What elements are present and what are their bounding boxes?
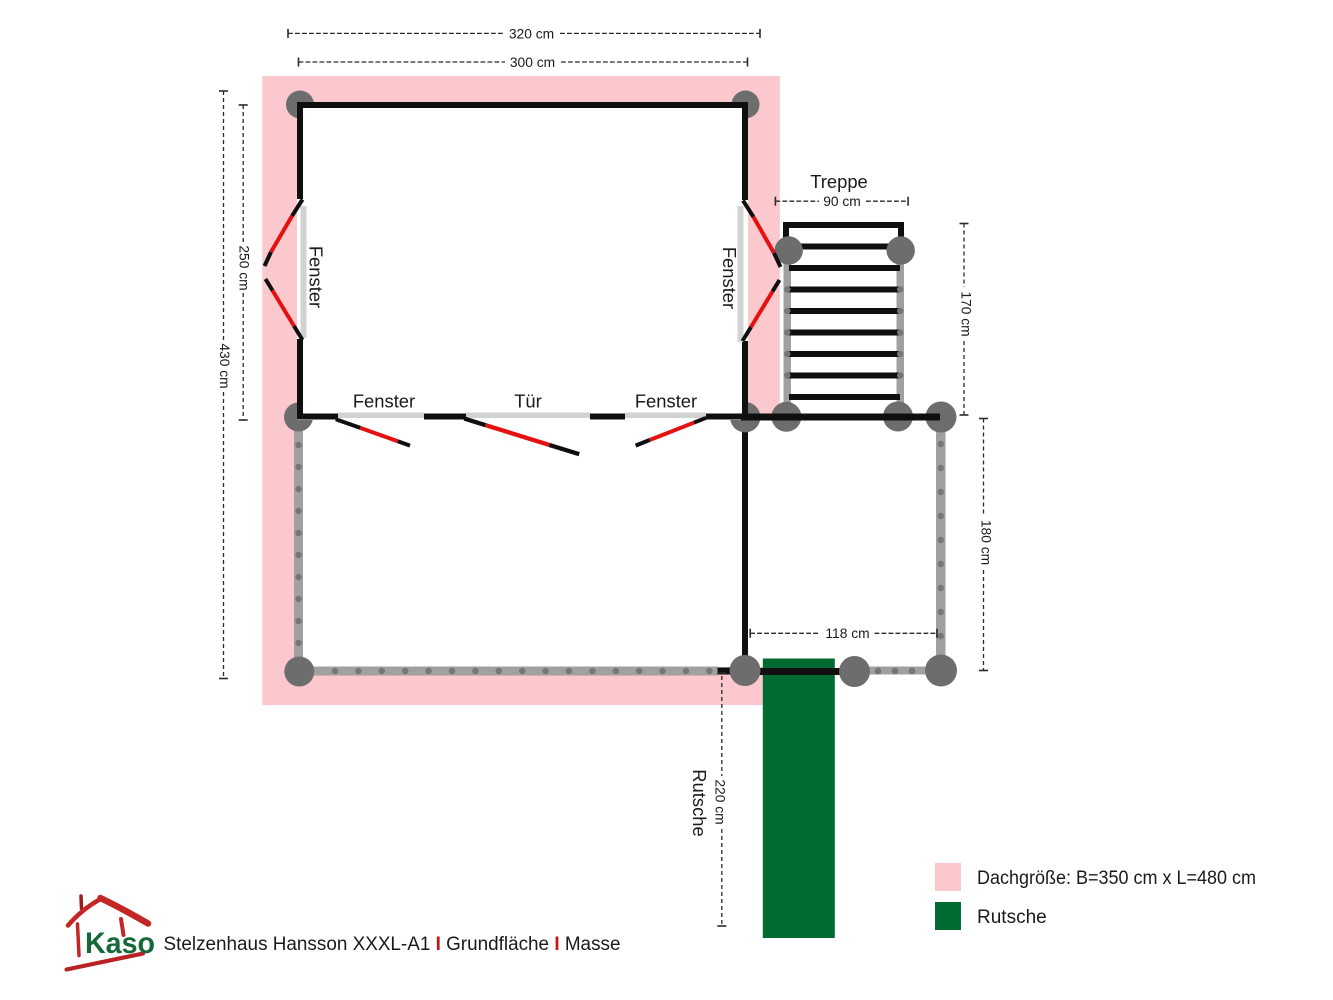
svg-text:Fenster: Fenster — [719, 247, 740, 309]
svg-text:220 cm: 220 cm — [713, 779, 728, 824]
svg-text:170 cm: 170 cm — [958, 291, 973, 336]
svg-text:Fenster: Fenster — [305, 246, 326, 308]
svg-text:Dachgröße: B=350 cm x L=480 cm: Dachgröße: B=350 cm x L=480 cm — [977, 868, 1256, 889]
svg-text:180 cm: 180 cm — [979, 520, 994, 565]
svg-text:250 cm: 250 cm — [237, 245, 252, 290]
svg-text:Treppe: Treppe — [810, 171, 868, 192]
svg-text:Stelzenhaus Hansson XXXL-A1 I: Stelzenhaus Hansson XXXL-A1 I Grundfläch… — [164, 934, 621, 955]
svg-text:118 cm: 118 cm — [825, 626, 869, 641]
svg-text:320 cm: 320 cm — [509, 27, 554, 42]
svg-text:300 cm: 300 cm — [510, 55, 555, 70]
svg-text:Tür: Tür — [514, 390, 542, 411]
svg-text:Fenster: Fenster — [353, 390, 415, 411]
svg-text:90 cm: 90 cm — [823, 194, 861, 209]
svg-text:Rutsche: Rutsche — [689, 769, 710, 836]
svg-text:Kaso: Kaso — [85, 927, 155, 960]
svg-text:Fenster: Fenster — [635, 390, 697, 411]
svg-text:Rutsche: Rutsche — [977, 907, 1047, 928]
svg-text:430 cm: 430 cm — [217, 343, 232, 388]
